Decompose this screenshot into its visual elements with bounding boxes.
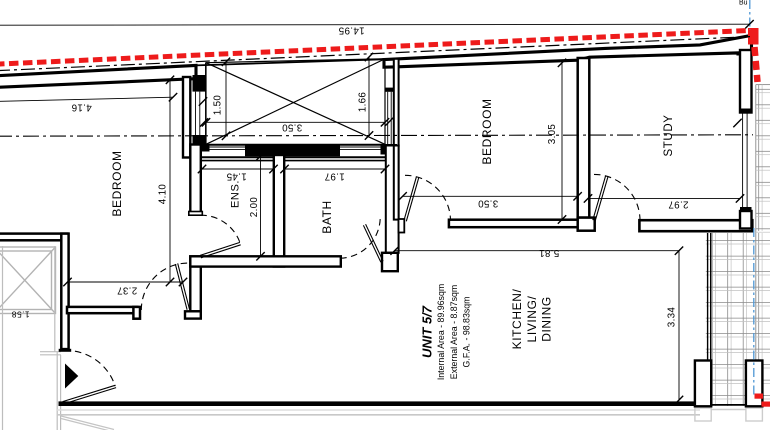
svg-text:3.50: 3.50 <box>478 197 499 208</box>
svg-text:1.50: 1.50 <box>213 95 224 116</box>
svg-text:BEDROOM: BEDROOM <box>480 98 494 164</box>
svg-text:2.97: 2.97 <box>668 199 688 210</box>
svg-text:BEDROOM: BEDROOM <box>110 150 124 216</box>
svg-text:LIVING/: LIVING/ <box>525 295 539 342</box>
svg-text:DINING: DINING <box>540 296 554 342</box>
svg-text:Internal Area - 89.96sqm: Internal Area - 89.96sqm <box>436 284 446 380</box>
svg-text:BATH: BATH <box>320 200 334 234</box>
svg-text:G.F.A. - 98.83sqm: G.F.A. - 98.83sqm <box>462 297 472 368</box>
svg-text:14.95: 14.95 <box>338 24 364 35</box>
svg-text:2.00: 2.00 <box>249 197 260 218</box>
svg-text:STUDY: STUDY <box>663 115 675 157</box>
svg-text:5.81: 5.81 <box>539 247 559 258</box>
svg-text:Bu: Bu <box>739 0 748 7</box>
svg-text:2.37: 2.37 <box>117 285 137 296</box>
svg-text:1.97: 1.97 <box>324 171 344 182</box>
svg-text:ENS.: ENS. <box>229 180 241 208</box>
svg-text:UNIT 5/7: UNIT 5/7 <box>419 305 434 358</box>
svg-text:4.10: 4.10 <box>157 184 168 205</box>
svg-text:1.45: 1.45 <box>226 171 247 182</box>
svg-text:3.50: 3.50 <box>282 121 303 132</box>
svg-text:4.16: 4.16 <box>71 101 92 112</box>
svg-text:3.34: 3.34 <box>667 307 678 328</box>
svg-text:1.66: 1.66 <box>358 92 369 113</box>
svg-text:1.58: 1.58 <box>11 310 29 320</box>
svg-text:External Area - 8.87sqm: External Area - 8.87sqm <box>449 285 459 379</box>
svg-text:3.05: 3.05 <box>547 124 558 145</box>
svg-text:KITCHEN/: KITCHEN/ <box>510 289 524 350</box>
